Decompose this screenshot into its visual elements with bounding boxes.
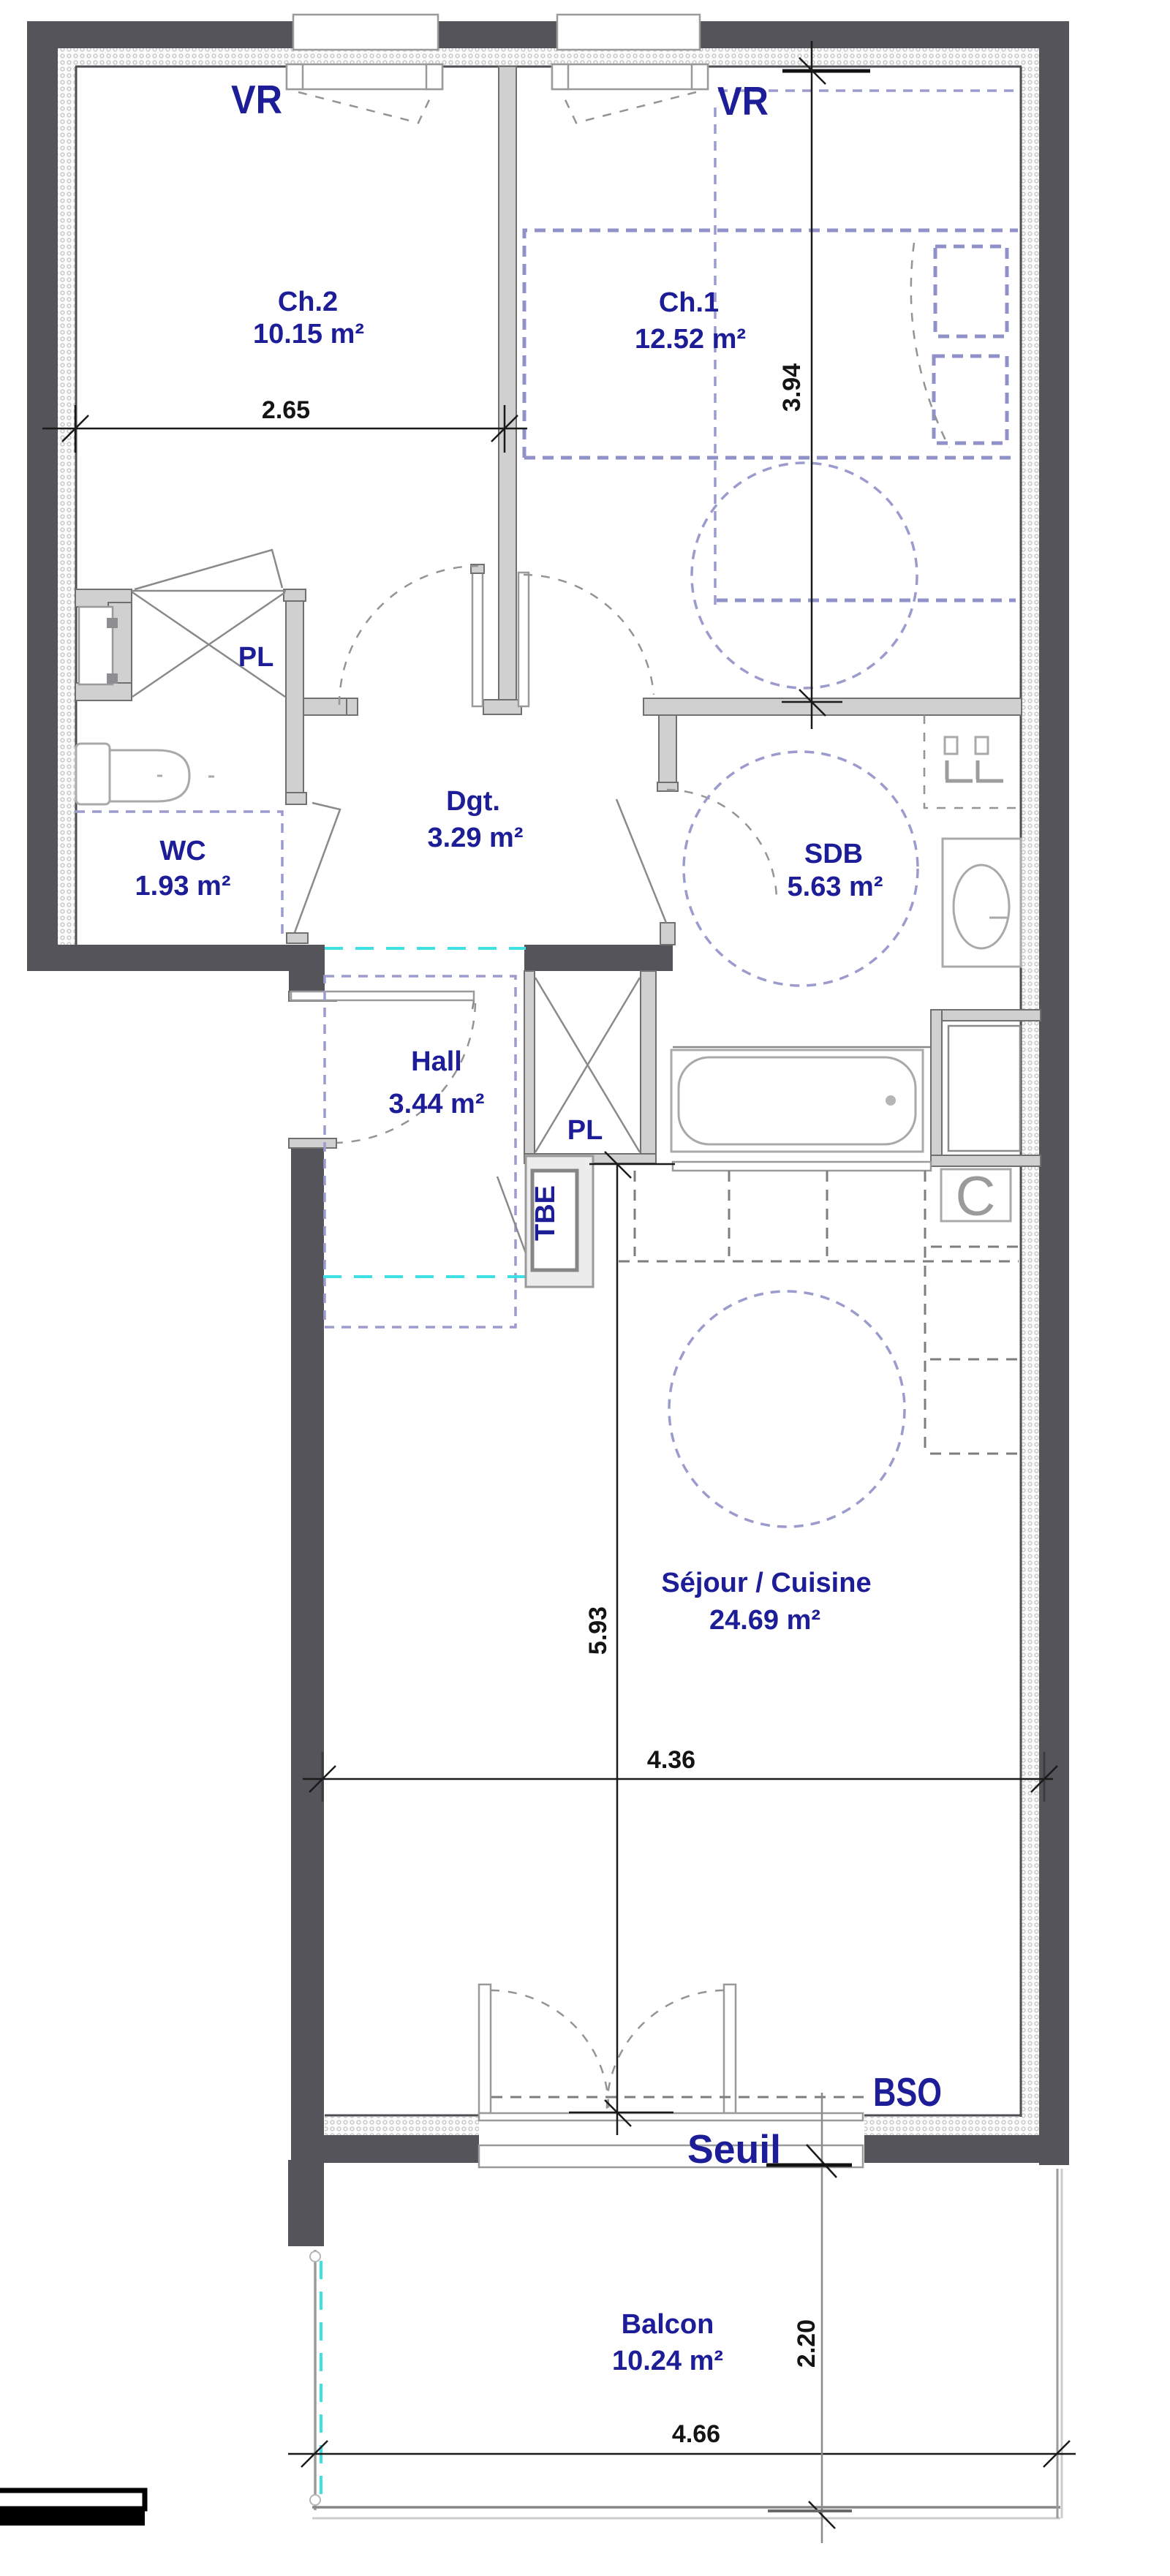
svg-text:3.29 m²: 3.29 m²	[428, 823, 524, 853]
svg-text:1.93 m²: 1.93 m²	[135, 871, 231, 902]
svg-text:Ch.1: Ch.1	[659, 287, 719, 318]
svg-text:SDB: SDB	[804, 839, 863, 869]
svg-text:Séjour / Cuisine: Séjour / Cuisine	[661, 1568, 871, 1598]
svg-text:24.69 m²: 24.69 m²	[709, 1605, 820, 1636]
svg-text:Seuil: Seuil	[687, 2126, 781, 2172]
svg-text:Hall: Hall	[411, 1046, 462, 1077]
svg-text:BSO: BSO	[873, 2069, 942, 2115]
svg-text:2.20: 2.20	[793, 2319, 820, 2368]
svg-text:12.52 m²: 12.52 m²	[635, 324, 746, 355]
svg-text:2.65: 2.65	[262, 396, 310, 424]
svg-text:5.63 m²: 5.63 m²	[788, 872, 883, 902]
svg-text:VR: VR	[231, 77, 282, 122]
svg-text:10.15 m²: 10.15 m²	[253, 319, 364, 350]
svg-text:Dgt.: Dgt.	[446, 786, 500, 817]
svg-text:Ch.2: Ch.2	[278, 287, 338, 317]
svg-text:VR: VR	[717, 78, 769, 124]
svg-text:C: C	[956, 1166, 996, 1228]
svg-text:PL: PL	[238, 642, 274, 673]
svg-text:4.36: 4.36	[647, 1746, 695, 1774]
svg-text:TBE: TBE	[530, 1185, 561, 1241]
svg-text:4.66: 4.66	[672, 2420, 720, 2448]
svg-text:Balcon: Balcon	[622, 2309, 714, 2340]
svg-text:5.93: 5.93	[584, 1606, 612, 1655]
svg-text:3.94: 3.94	[778, 363, 806, 412]
svg-text:PL: PL	[567, 1115, 603, 1146]
svg-text:3.44 m²: 3.44 m²	[389, 1089, 485, 1119]
svg-text:WC: WC	[159, 836, 205, 866]
svg-text:10.24 m²: 10.24 m²	[612, 2346, 723, 2376]
